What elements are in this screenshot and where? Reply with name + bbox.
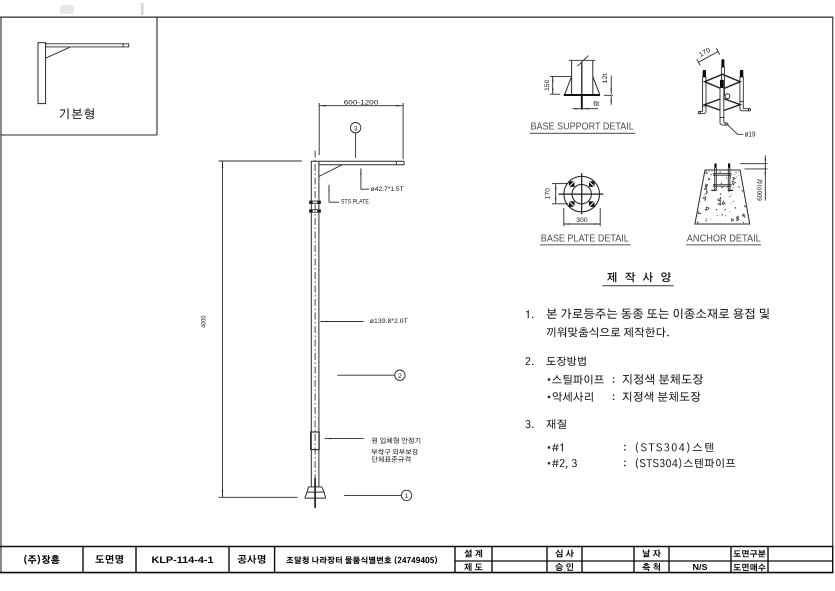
svg-text:BASE SUPPORT DETAIL: BASE SUPPORT DETAIL [531, 122, 635, 133]
svg-text:2: 2 [398, 373, 402, 380]
svg-text:300: 300 [576, 217, 588, 224]
svg-text:170: 170 [698, 47, 712, 59]
svg-text:3: 3 [354, 125, 358, 132]
svg-text:150: 150 [544, 79, 551, 91]
svg-text:N/S: N/S [693, 563, 709, 572]
svg-text:6t: 6t [593, 99, 599, 108]
svg-text:170: 170 [544, 188, 551, 200]
svg-text:1: 1 [405, 493, 409, 500]
svg-text:BASE PLATE DETAIL: BASE PLATE DETAIL [541, 234, 629, 245]
svg-text:ø139.8*2.0T: ø139.8*2.0T [370, 318, 408, 325]
svg-text:KLP-114-4-1: KLP-114-4-1 [152, 555, 214, 565]
svg-text:STS PLATE: STS PLATE [341, 199, 369, 205]
svg-text:4000: 4000 [200, 315, 207, 328]
svg-text:ø42.7*1.5T: ø42.7*1.5T [371, 186, 404, 193]
svg-text:ANCHOR DETAIL: ANCHOR DETAIL [687, 234, 761, 245]
svg-text:12t: 12t [602, 73, 609, 84]
svg-text:ø19: ø19 [745, 132, 756, 139]
